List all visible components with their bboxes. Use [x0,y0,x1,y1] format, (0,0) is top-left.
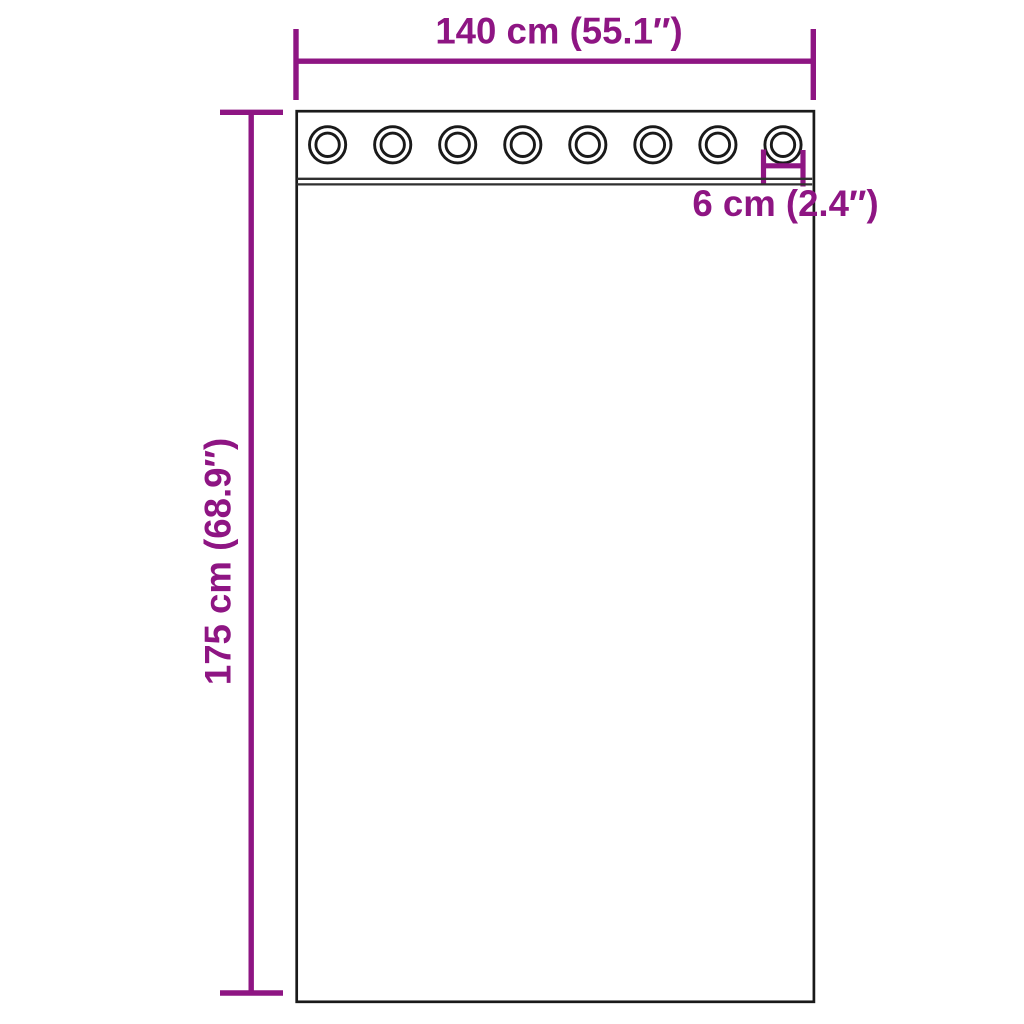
svg-text:140 cm (55.1″): 140 cm (55.1″) [435,10,682,51]
svg-text:175 cm (68.9″): 175 cm (68.9″) [197,438,238,685]
svg-text:6 cm (2.4″): 6 cm (2.4″) [692,183,878,224]
